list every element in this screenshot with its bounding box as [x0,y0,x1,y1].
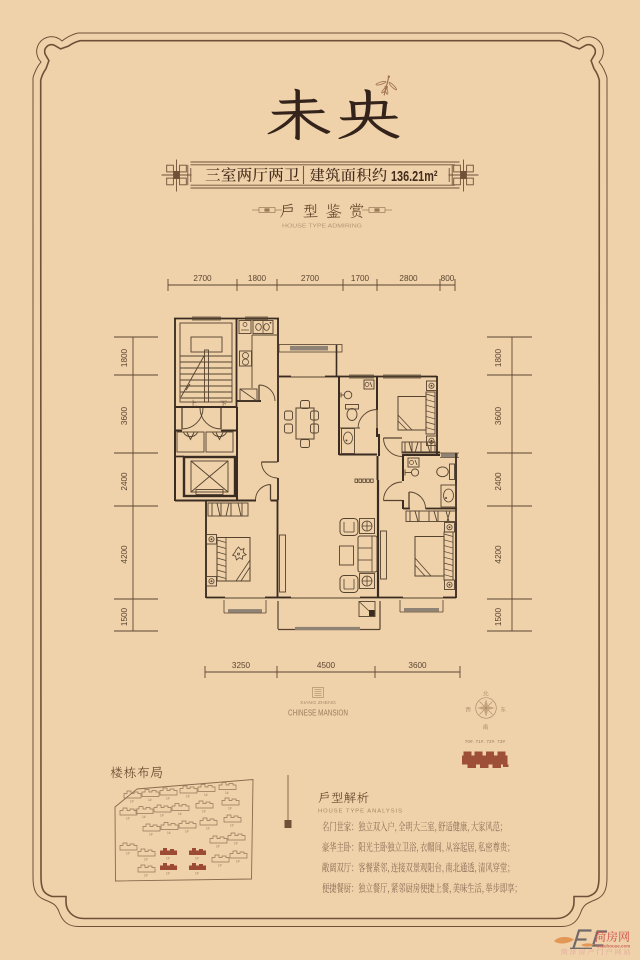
svg-text:1#: 1# [204,793,208,797]
svg-text:1#: 1# [225,791,229,795]
svg-text:1#: 1# [178,812,182,816]
svg-text:1#: 1# [218,864,222,868]
svg-text:800: 800 [441,274,455,283]
svg-text:3250: 3250 [232,661,251,670]
svg-text:1#: 1# [126,817,130,821]
svg-text:1#: 1# [195,872,199,876]
svg-text:1#: 1# [202,810,206,814]
svg-text:1#: 1# [206,827,210,831]
svg-text:1800: 1800 [248,274,267,283]
svg-text:1700: 1700 [351,274,370,283]
svg-text:1#: 1# [160,814,164,818]
svg-text:1800: 1800 [494,348,503,367]
svg-text:1#: 1# [144,874,148,878]
svg-text:3600: 3600 [408,661,427,670]
svg-text:1#: 1# [166,872,170,876]
svg-text:1#: 1# [148,798,152,802]
svg-text:1#: 1# [142,815,146,819]
svg-text:1800: 1800 [120,348,129,367]
svg-text:XIANG ZHENG: XIANG ZHENG [300,700,336,706]
svg-text:1#: 1# [228,807,232,811]
svg-text:4200: 4200 [120,545,129,564]
svg-text:1#: 1# [167,831,171,835]
svg-text:4500: 4500 [317,661,336,670]
svg-text:1#: 1# [216,845,220,849]
svg-text:2400: 2400 [120,472,129,491]
svg-text:1500: 1500 [120,607,129,626]
svg-text:1#: 1# [149,833,153,837]
svg-text:HOUSE TYPE ANALYSIS: HOUSE TYPE ANALYSIS [318,809,402,815]
svg-text:1#: 1# [166,857,170,861]
svg-text:1#: 1# [130,800,134,804]
svg-text:1#: 1# [234,842,238,846]
svg-text:2700: 2700 [301,274,320,283]
svg-text:3600: 3600 [120,406,129,425]
svg-text:1#: 1# [236,860,240,864]
svg-text:CHINESE MANSION: CHINESE MANSION [288,709,348,718]
svg-text:hezehouse.com: hezehouse.com [597,943,631,948]
svg-text:1#: 1# [166,797,170,801]
svg-text:3600: 3600 [494,406,503,425]
svg-text:4200: 4200 [494,545,503,564]
svg-text:136.21m²: 136.21m² [391,168,438,185]
svg-text:HOUSE TYPE ADMIRING: HOUSE TYPE ADMIRING [282,224,362,230]
svg-text:2800: 2800 [399,274,418,283]
svg-text:2700: 2700 [193,274,212,283]
svg-text:1#: 1# [195,857,199,861]
svg-text:1500: 1500 [494,607,503,626]
svg-text:2400: 2400 [494,472,503,491]
svg-text:1#: 1# [186,795,190,799]
svg-text:1#: 1# [144,858,148,862]
svg-text:1#: 1# [126,852,130,856]
svg-text:1#: 1# [230,824,234,828]
svg-text:70#. 71#. 72#. 73#: 70#. 71#. 72#. 73# [465,739,506,744]
svg-text:1#: 1# [185,830,189,834]
